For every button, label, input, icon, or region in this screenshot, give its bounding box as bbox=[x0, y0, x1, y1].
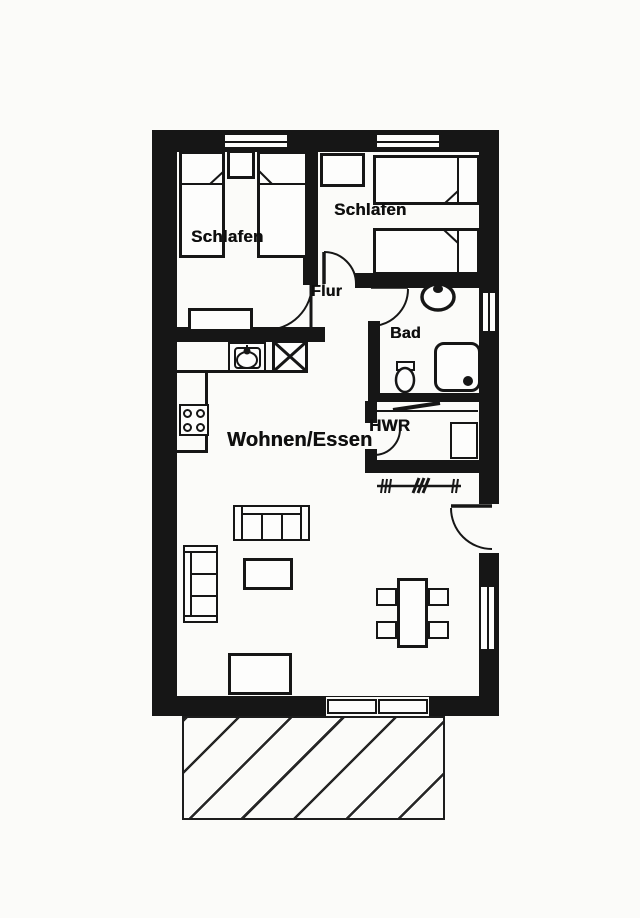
window-bedroom-right bbox=[375, 133, 441, 149]
wall-exterior-top bbox=[152, 130, 498, 152]
wall-exterior-bottom bbox=[152, 696, 498, 716]
stove-burner bbox=[183, 423, 192, 432]
window-bathroom bbox=[481, 291, 497, 333]
sofa-cushion-divider bbox=[191, 595, 216, 597]
wardrobe-bedroom-right bbox=[320, 153, 365, 187]
window-dining bbox=[479, 585, 496, 651]
nightstand bbox=[227, 150, 255, 179]
door-bedroom-left bbox=[266, 284, 312, 330]
sofa-cushion-divider bbox=[191, 573, 216, 575]
toilet bbox=[396, 362, 414, 392]
room-label-bedroom-right: Schlafen bbox=[334, 200, 406, 220]
kitchen-counter-bottom-edge bbox=[177, 450, 208, 453]
sofa-backrest bbox=[190, 551, 192, 617]
wall-bathroom-left bbox=[368, 321, 380, 401]
stove bbox=[179, 404, 209, 436]
sofa-armrest bbox=[300, 507, 302, 539]
room-label-utility: HWR bbox=[369, 416, 410, 436]
coffee-table bbox=[243, 558, 293, 590]
wardrobe-bedroom-left bbox=[188, 308, 253, 332]
dining-chair bbox=[428, 621, 449, 639]
partition-tick-line bbox=[377, 478, 461, 493]
dining-chair bbox=[376, 621, 397, 639]
sofa-two-seat bbox=[183, 545, 218, 623]
terrace-door-leaf-left bbox=[327, 699, 377, 714]
bed-right-2 bbox=[373, 228, 480, 275]
terrace-window-right bbox=[378, 699, 428, 714]
dining-chair bbox=[376, 588, 397, 606]
window-bedroom-left bbox=[223, 133, 289, 149]
kitchen-counter-front-edge bbox=[177, 370, 307, 373]
stove-burner bbox=[196, 409, 205, 418]
shower bbox=[434, 342, 481, 392]
kitchen-sink-basin bbox=[234, 347, 261, 369]
terrace-hatched-area bbox=[182, 716, 445, 820]
entrance-door-opening bbox=[477, 504, 499, 553]
sofa-three-seat bbox=[233, 505, 310, 541]
room-label-living-dining: Wohnen/Essen bbox=[227, 429, 372, 452]
room-label-bedroom-left: Schlafen bbox=[191, 227, 263, 247]
wall-bedroom-right-bottom bbox=[355, 273, 480, 288]
sofa-armrest bbox=[241, 507, 243, 539]
dining-chair bbox=[428, 588, 449, 606]
stove-burner bbox=[183, 409, 192, 418]
sofa-cushion-divider bbox=[261, 514, 263, 539]
door-bedroom-right bbox=[324, 252, 356, 284]
room-label-hallway: Flur bbox=[311, 283, 342, 301]
bed-right-1 bbox=[373, 155, 480, 205]
sofa-backrest bbox=[241, 513, 302, 515]
bed-left-2 bbox=[257, 151, 308, 258]
washing-machine bbox=[450, 422, 478, 459]
sideboard bbox=[228, 653, 292, 695]
wall-exterior-left bbox=[152, 130, 177, 716]
dining-table bbox=[397, 578, 428, 648]
wall-bathroom-bottom bbox=[368, 393, 480, 402]
room-label-bathroom: Bad bbox=[390, 325, 421, 343]
sofa-cushion-divider bbox=[281, 514, 283, 539]
shaft-x-box bbox=[272, 340, 308, 373]
stove-burner bbox=[196, 423, 205, 432]
floor-plan-page: Schlafen Schlafen Flur Bad HWR Wohnen/Es… bbox=[0, 0, 640, 918]
wall-utility-bottom bbox=[365, 460, 480, 473]
